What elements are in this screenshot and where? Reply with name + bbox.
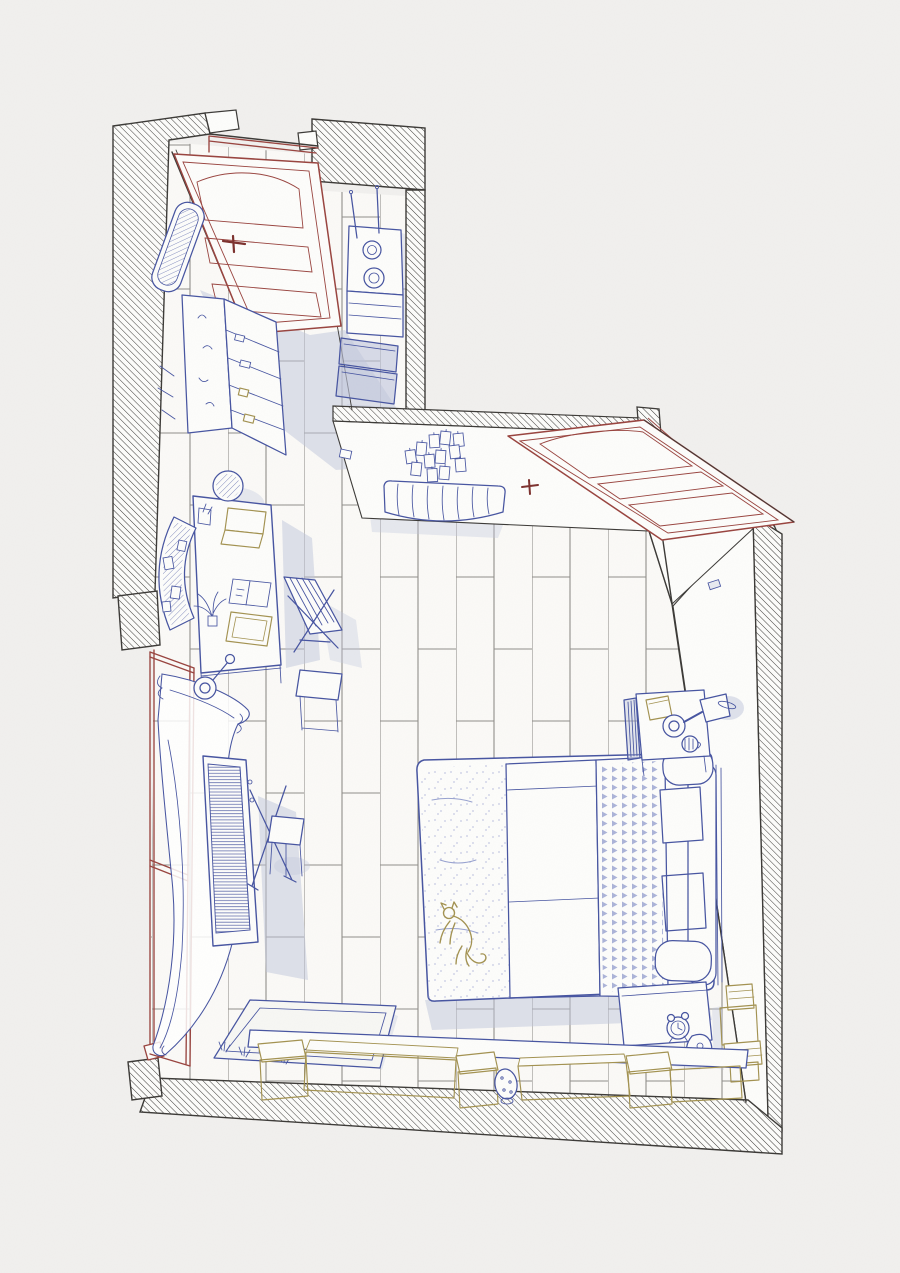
desk-chair — [213, 471, 243, 501]
bed-sheet — [420, 764, 510, 1000]
bed — [417, 747, 722, 1001]
laptop — [221, 508, 266, 548]
axonometric-room-illustration — [0, 0, 900, 1273]
notebook — [229, 579, 271, 607]
thermostat — [339, 449, 351, 459]
radiator — [384, 481, 505, 521]
door-frame-cap — [205, 110, 239, 133]
sketch-pad — [226, 612, 272, 646]
storage-bins — [336, 338, 398, 404]
